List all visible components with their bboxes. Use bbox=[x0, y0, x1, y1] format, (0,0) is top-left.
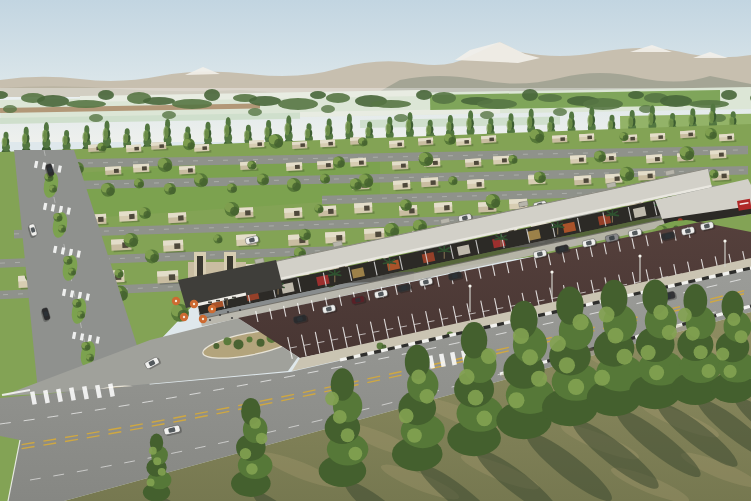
leaf-highlight bbox=[686, 327, 700, 341]
house-window bbox=[336, 235, 342, 241]
distant-tree bbox=[172, 99, 212, 109]
tree-shade bbox=[85, 345, 90, 350]
palm-frond bbox=[558, 226, 564, 227]
house-window bbox=[159, 144, 164, 148]
tree-shade bbox=[292, 183, 300, 191]
house-window bbox=[614, 176, 619, 181]
leaf-highlight bbox=[568, 379, 584, 395]
distant-tree bbox=[204, 89, 220, 101]
palm-frond bbox=[390, 263, 396, 264]
poplar-highlight bbox=[244, 130, 249, 140]
distant-tree bbox=[143, 97, 175, 105]
house bbox=[292, 141, 309, 150]
palm-frond bbox=[329, 274, 335, 275]
house bbox=[105, 166, 123, 176]
house bbox=[179, 166, 197, 176]
poplar-highlight bbox=[385, 123, 390, 134]
house-window bbox=[688, 133, 693, 137]
house bbox=[392, 161, 410, 171]
leaf-highlight bbox=[727, 313, 740, 326]
house-window bbox=[295, 165, 300, 169]
poplar-highlight bbox=[587, 114, 592, 127]
house bbox=[157, 270, 181, 285]
tree-shade bbox=[188, 142, 195, 149]
house bbox=[350, 158, 368, 168]
poplar-highlight bbox=[527, 116, 532, 129]
leaf-highlight bbox=[649, 365, 664, 380]
umbrella-top bbox=[183, 316, 185, 318]
tree-shade bbox=[57, 216, 62, 221]
tree-shade bbox=[449, 137, 456, 144]
poplar-highlight bbox=[406, 119, 411, 132]
leaf-highlight bbox=[508, 392, 524, 408]
poplar-highlight bbox=[2, 137, 7, 147]
tree-shade bbox=[144, 211, 151, 218]
tree-shade bbox=[251, 164, 256, 169]
poplar-highlight bbox=[608, 120, 613, 130]
palm-frond bbox=[552, 226, 558, 227]
house-window bbox=[476, 182, 481, 187]
tree-shade bbox=[129, 238, 138, 247]
distant-tree bbox=[432, 92, 456, 104]
house-window bbox=[142, 166, 147, 170]
palm-frond bbox=[606, 215, 612, 216]
house-window bbox=[375, 231, 381, 237]
tree-shade bbox=[106, 187, 114, 195]
house-window bbox=[202, 146, 207, 150]
house-window bbox=[502, 158, 507, 162]
tree-shade bbox=[199, 178, 207, 186]
house-window bbox=[426, 140, 431, 144]
tree-shade bbox=[318, 207, 323, 212]
poplar-highlight bbox=[688, 115, 693, 126]
distant-tree bbox=[628, 91, 644, 99]
leaf-highlight bbox=[407, 428, 422, 443]
house-window bbox=[188, 168, 193, 172]
tree-shade bbox=[710, 132, 717, 139]
house-window bbox=[464, 140, 469, 144]
tree-shade bbox=[405, 203, 412, 210]
house bbox=[133, 164, 151, 174]
leaf-highlight bbox=[348, 447, 362, 461]
tree-shade bbox=[262, 177, 269, 184]
distant-tree bbox=[660, 95, 692, 107]
shrub bbox=[233, 339, 243, 349]
leaf-highlight bbox=[608, 328, 624, 344]
light-pole-head bbox=[550, 270, 553, 273]
house bbox=[646, 154, 664, 164]
house-window bbox=[364, 206, 370, 211]
house-window bbox=[294, 211, 300, 216]
leaf-highlight bbox=[399, 409, 414, 424]
poplar-highlight bbox=[204, 128, 209, 139]
house bbox=[168, 212, 189, 225]
cafe-sign-text bbox=[216, 300, 220, 302]
house-window bbox=[401, 163, 406, 167]
house-window bbox=[169, 274, 176, 280]
house-window bbox=[402, 183, 407, 188]
shrub bbox=[247, 337, 253, 343]
cafe-sign-text bbox=[224, 298, 228, 300]
leaf-highlight bbox=[716, 348, 729, 361]
house-window bbox=[444, 205, 450, 210]
palm-frond bbox=[335, 274, 341, 275]
leaf-highlight bbox=[325, 392, 339, 406]
tree-shade bbox=[685, 151, 694, 160]
distant-tree bbox=[553, 108, 567, 116]
house bbox=[467, 179, 487, 190]
leaf-highlight bbox=[468, 390, 484, 406]
leaf-highlight bbox=[572, 314, 588, 330]
tree-shade bbox=[230, 207, 239, 216]
tree-shade bbox=[599, 154, 606, 161]
shrub bbox=[223, 337, 231, 345]
leaf-highlight bbox=[249, 417, 261, 429]
palm-frond bbox=[444, 251, 450, 252]
tower-slot bbox=[197, 256, 203, 276]
tree-shade bbox=[52, 187, 57, 192]
leaf-highlight bbox=[420, 389, 435, 404]
poplar-highlight bbox=[486, 124, 491, 134]
leaf-highlight bbox=[594, 370, 610, 386]
person bbox=[231, 317, 233, 319]
leaf-highlight bbox=[550, 336, 566, 352]
poplar-highlight bbox=[345, 121, 350, 134]
tree-shade bbox=[304, 232, 311, 239]
house-window bbox=[658, 135, 663, 139]
poplar-highlight bbox=[668, 118, 673, 128]
tree-shade bbox=[491, 199, 500, 208]
tree-shade bbox=[324, 177, 330, 183]
house-window bbox=[245, 210, 251, 215]
leaf-highlight bbox=[735, 330, 748, 343]
leaf-highlight bbox=[481, 348, 497, 364]
leaf-highlight bbox=[158, 468, 166, 476]
leaf-highlight bbox=[147, 478, 155, 486]
person bbox=[227, 311, 229, 313]
distant-tree bbox=[278, 98, 318, 110]
house bbox=[249, 140, 266, 149]
poplar-highlight bbox=[163, 126, 168, 139]
tree-shade bbox=[364, 178, 373, 187]
house bbox=[570, 155, 588, 165]
house-window bbox=[474, 161, 479, 165]
distant-tree bbox=[538, 94, 562, 102]
house bbox=[434, 202, 455, 215]
house-window bbox=[328, 142, 333, 146]
house bbox=[680, 130, 697, 139]
poplar-highlight bbox=[82, 132, 87, 143]
distant-tree bbox=[248, 108, 262, 116]
leaf-highlight bbox=[341, 428, 355, 442]
leaf-highlight bbox=[513, 328, 529, 344]
house-window bbox=[727, 136, 732, 140]
house bbox=[194, 144, 211, 153]
distant-tree bbox=[583, 98, 623, 110]
poplar-highlight bbox=[365, 127, 370, 137]
person bbox=[239, 309, 241, 311]
house bbox=[579, 133, 596, 142]
tree-shade bbox=[118, 272, 123, 277]
poplar-highlight bbox=[264, 127, 269, 138]
tree-shade bbox=[80, 313, 85, 318]
distant-tree bbox=[162, 111, 176, 119]
poplar-highlight bbox=[547, 122, 552, 132]
tree-shade bbox=[71, 270, 76, 275]
house bbox=[389, 140, 406, 149]
leaf-highlight bbox=[153, 457, 161, 465]
tree-shade bbox=[512, 158, 517, 163]
house-window bbox=[430, 180, 435, 185]
person bbox=[209, 319, 211, 321]
house bbox=[393, 180, 413, 191]
scene-svg bbox=[0, 0, 751, 501]
house bbox=[354, 202, 375, 215]
distant-tree bbox=[477, 99, 517, 109]
house bbox=[552, 135, 569, 144]
tree-shade bbox=[76, 302, 81, 307]
leaf-highlight bbox=[653, 305, 668, 320]
house-window bbox=[328, 209, 334, 214]
leaf-highlight bbox=[617, 349, 633, 365]
house-window bbox=[655, 157, 660, 161]
leaf-highlight bbox=[559, 357, 575, 373]
tree-shade bbox=[101, 146, 106, 151]
poplar-highlight bbox=[466, 118, 471, 131]
leaf-highlight bbox=[724, 365, 737, 378]
house bbox=[126, 144, 143, 153]
distant-tree bbox=[394, 114, 408, 122]
poplar-highlight bbox=[325, 125, 330, 136]
house-window bbox=[560, 137, 565, 141]
house bbox=[574, 175, 594, 186]
leaf-highlight bbox=[522, 349, 538, 365]
light-pole-head bbox=[468, 284, 471, 287]
tree-shade bbox=[539, 175, 546, 182]
house bbox=[650, 133, 667, 142]
tree-shade bbox=[169, 187, 176, 194]
distant-tree bbox=[37, 95, 69, 107]
poplar-highlight bbox=[123, 134, 128, 144]
house-window bbox=[647, 174, 652, 179]
tree-shade bbox=[713, 172, 718, 177]
umbrella-top bbox=[202, 318, 204, 320]
distant-tree bbox=[89, 114, 103, 122]
distant-tree bbox=[480, 111, 494, 119]
house-window bbox=[326, 163, 331, 167]
poplar-highlight bbox=[284, 123, 289, 136]
tree-shade bbox=[355, 182, 362, 189]
house-window bbox=[489, 138, 494, 142]
house bbox=[284, 208, 305, 221]
light-pole-head bbox=[723, 239, 726, 242]
house bbox=[418, 138, 435, 147]
distant-tree bbox=[522, 89, 538, 101]
poplar-highlight bbox=[62, 135, 67, 145]
poplar-highlight bbox=[103, 128, 108, 141]
poplar-highlight bbox=[22, 133, 27, 144]
distant-tree bbox=[326, 93, 350, 103]
house bbox=[719, 133, 736, 142]
tree-shade bbox=[452, 179, 457, 184]
shrub bbox=[213, 343, 219, 349]
leaf-highlight bbox=[246, 463, 258, 475]
house bbox=[456, 138, 473, 147]
house-window bbox=[114, 169, 119, 173]
palm-frond bbox=[501, 239, 507, 240]
house-window bbox=[174, 243, 180, 249]
house-window bbox=[721, 174, 726, 179]
house-window bbox=[359, 160, 364, 164]
poplar-highlight bbox=[305, 129, 310, 139]
leaf-highlight bbox=[662, 325, 677, 340]
cafe-sign-text bbox=[208, 302, 212, 304]
tree-shade bbox=[623, 135, 628, 140]
light-pole-head bbox=[638, 254, 641, 257]
tree-shade bbox=[217, 237, 222, 242]
house-window bbox=[587, 136, 592, 140]
leaf-highlight bbox=[477, 411, 493, 427]
poplar-highlight bbox=[224, 124, 229, 137]
shrub bbox=[257, 339, 265, 347]
house bbox=[286, 162, 304, 172]
distant-tree bbox=[689, 100, 729, 108]
tree-shade bbox=[362, 140, 367, 145]
distant-tree bbox=[98, 90, 114, 100]
house-window bbox=[129, 214, 135, 219]
poplar-highlight bbox=[648, 112, 653, 125]
house-window bbox=[579, 158, 584, 162]
house-window bbox=[257, 142, 262, 146]
house-window bbox=[583, 178, 588, 183]
house bbox=[163, 240, 186, 254]
tree-shade bbox=[231, 186, 237, 192]
palm-frond bbox=[384, 263, 390, 264]
tree-shade bbox=[67, 259, 72, 264]
leaf-highlight bbox=[694, 345, 708, 359]
house-window bbox=[300, 143, 305, 147]
leaf-highlight bbox=[641, 345, 656, 360]
leaf-highlight bbox=[411, 369, 426, 384]
house bbox=[465, 158, 483, 168]
house-window bbox=[397, 142, 402, 146]
poplar-highlight bbox=[426, 125, 431, 135]
umbrella-top bbox=[175, 300, 177, 302]
distant-tree bbox=[3, 105, 17, 113]
poplar-highlight bbox=[143, 130, 148, 141]
poplar-highlight bbox=[42, 129, 47, 142]
umbrella-top bbox=[211, 308, 213, 310]
distant-tree bbox=[416, 90, 432, 100]
palm-frond bbox=[612, 215, 618, 216]
house-window bbox=[630, 137, 635, 141]
house bbox=[481, 135, 498, 144]
palm-frond bbox=[495, 239, 501, 240]
poplar-highlight bbox=[567, 118, 572, 129]
tree-shade bbox=[625, 171, 634, 180]
house bbox=[317, 160, 335, 170]
palm-frond bbox=[438, 251, 444, 252]
leaf-highlight bbox=[149, 447, 157, 455]
leaf-highlight bbox=[256, 433, 268, 445]
poplar-highlight bbox=[628, 116, 633, 127]
leaf-highlight bbox=[333, 410, 347, 424]
umbrella-top bbox=[193, 303, 195, 305]
distant-tree bbox=[66, 100, 106, 108]
house-window bbox=[433, 161, 438, 165]
leaf-highlight bbox=[459, 369, 475, 385]
distant-tree bbox=[371, 100, 411, 108]
distant-tree bbox=[321, 105, 335, 113]
person bbox=[219, 314, 221, 316]
tree-shade bbox=[424, 157, 433, 166]
leaf-highlight bbox=[240, 448, 252, 460]
tree-shade bbox=[89, 356, 94, 361]
tree-shade bbox=[150, 254, 158, 262]
house-window bbox=[719, 152, 724, 156]
tree-shade bbox=[61, 227, 66, 232]
house bbox=[320, 139, 337, 148]
cafe-sign-text bbox=[232, 297, 236, 299]
house-window bbox=[98, 217, 104, 222]
house-window bbox=[178, 215, 184, 220]
leaf-highlight bbox=[702, 364, 716, 378]
leaf-highlight bbox=[678, 308, 692, 322]
house-window bbox=[134, 147, 139, 151]
distant-tree bbox=[721, 90, 737, 100]
distant-tree bbox=[249, 96, 281, 106]
poplar-highlight bbox=[507, 120, 512, 131]
house-window bbox=[609, 156, 614, 160]
house bbox=[119, 211, 140, 224]
leaf-highlight bbox=[599, 307, 615, 323]
house bbox=[421, 177, 441, 188]
tree-shade bbox=[338, 160, 345, 167]
poplar-highlight bbox=[709, 111, 714, 124]
house bbox=[151, 142, 168, 151]
tree-shade bbox=[274, 139, 283, 148]
tree-shade bbox=[138, 182, 144, 188]
leaf-highlight bbox=[531, 371, 547, 387]
aerial-development-rendering bbox=[0, 0, 751, 501]
tree-shade bbox=[163, 162, 172, 171]
house bbox=[710, 150, 728, 160]
tree-shade bbox=[535, 134, 544, 143]
distant-tree bbox=[310, 91, 326, 99]
